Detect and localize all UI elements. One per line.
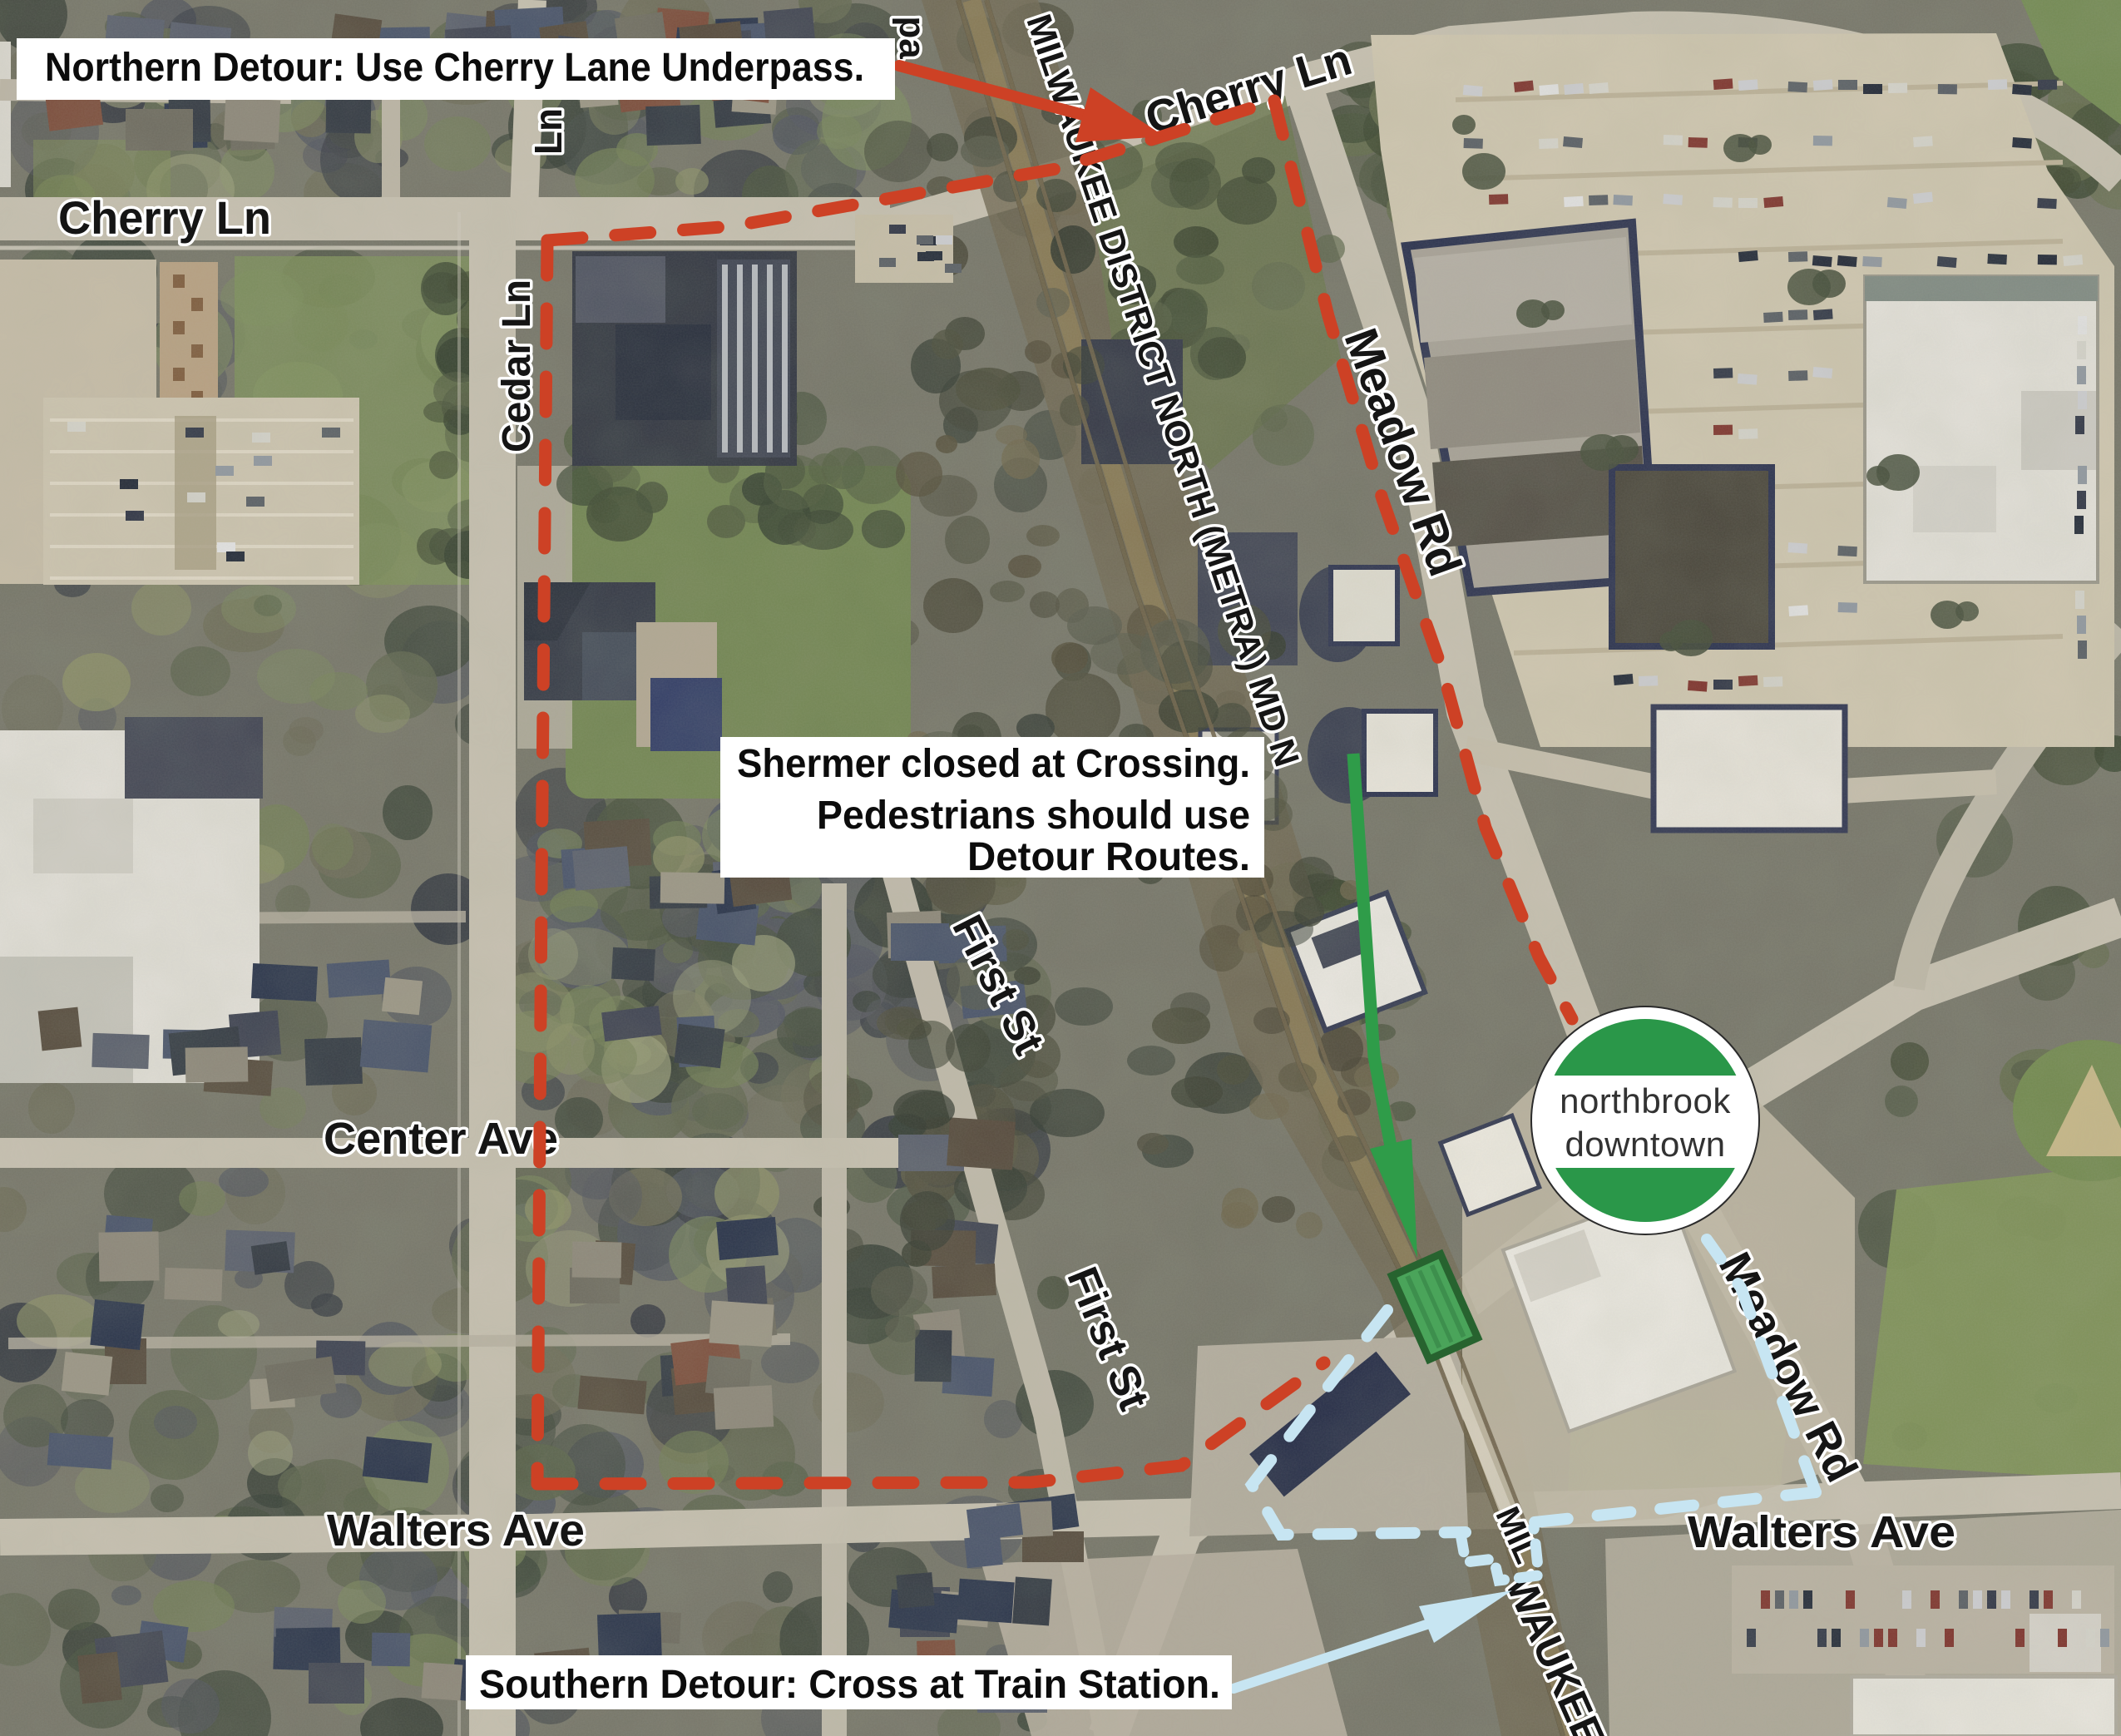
- svg-text:Cedar Ln: Cedar Ln: [495, 279, 539, 453]
- svg-text:pa: pa: [892, 16, 932, 59]
- svg-text:Detour Routes.: Detour Routes.: [967, 835, 1250, 879]
- svg-text:Walters Ave: Walters Ave: [1688, 1507, 1955, 1557]
- svg-text:downtown: downtown: [1565, 1125, 1725, 1164]
- svg-text:Shermer closed at Crossing.: Shermer closed at Crossing.: [737, 742, 1250, 786]
- svg-text:Southern Detour: Cross at Trai: Southern Detour: Cross at Train Station.: [479, 1663, 1220, 1707]
- svg-text:Pedestrians should use: Pedestrians should use: [817, 794, 1250, 838]
- svg-text:Center Ave: Center Ave: [324, 1114, 558, 1164]
- svg-text:Cherry Ln: Cherry Ln: [58, 191, 271, 244]
- svg-text:northbrook: northbrook: [1560, 1081, 1731, 1120]
- svg-text:Northern Detour: Use Cherry La: Northern Detour: Use Cherry Lane Underpa…: [45, 46, 864, 90]
- svg-text:Ln: Ln: [527, 108, 570, 155]
- svg-text:Walters Ave: Walters Ave: [327, 1506, 585, 1555]
